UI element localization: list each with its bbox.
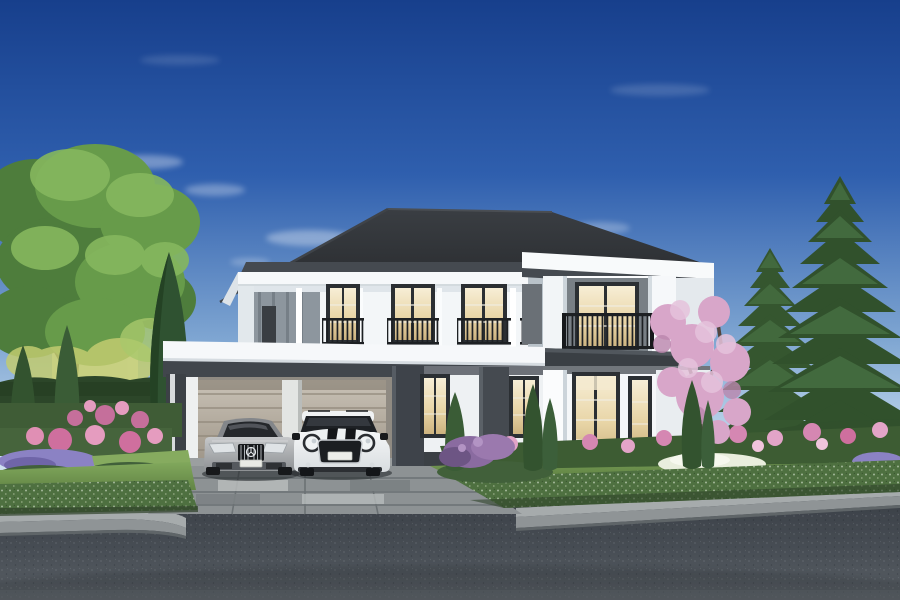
suv-license-plate	[328, 452, 352, 460]
rendered-photo	[0, 0, 900, 600]
sedan-license-plate	[240, 460, 262, 467]
paver-dark	[350, 480, 410, 491]
suv-wheel	[300, 468, 314, 476]
sedan-wheel	[206, 467, 220, 475]
downspout	[296, 288, 302, 350]
suv-mirror	[380, 433, 388, 440]
porch-window-1	[420, 374, 450, 438]
left-garden	[0, 400, 196, 494]
sedan-grille	[238, 444, 264, 461]
paver-light	[218, 480, 288, 491]
left-front-hedge	[0, 480, 198, 516]
suv-wheel	[366, 468, 380, 476]
suv-hood-stripe	[345, 429, 356, 442]
juliet-railings	[322, 318, 542, 345]
gray-wall-panel	[254, 292, 320, 348]
suv-mirror	[292, 433, 300, 440]
sedan-headlight-right	[263, 443, 287, 453]
sedan-wheel	[278, 467, 292, 475]
balcony-railing	[562, 313, 654, 349]
sedan-headlight-left	[209, 443, 236, 453]
carport-column-right	[392, 366, 424, 472]
house-exterior-render	[0, 0, 900, 600]
